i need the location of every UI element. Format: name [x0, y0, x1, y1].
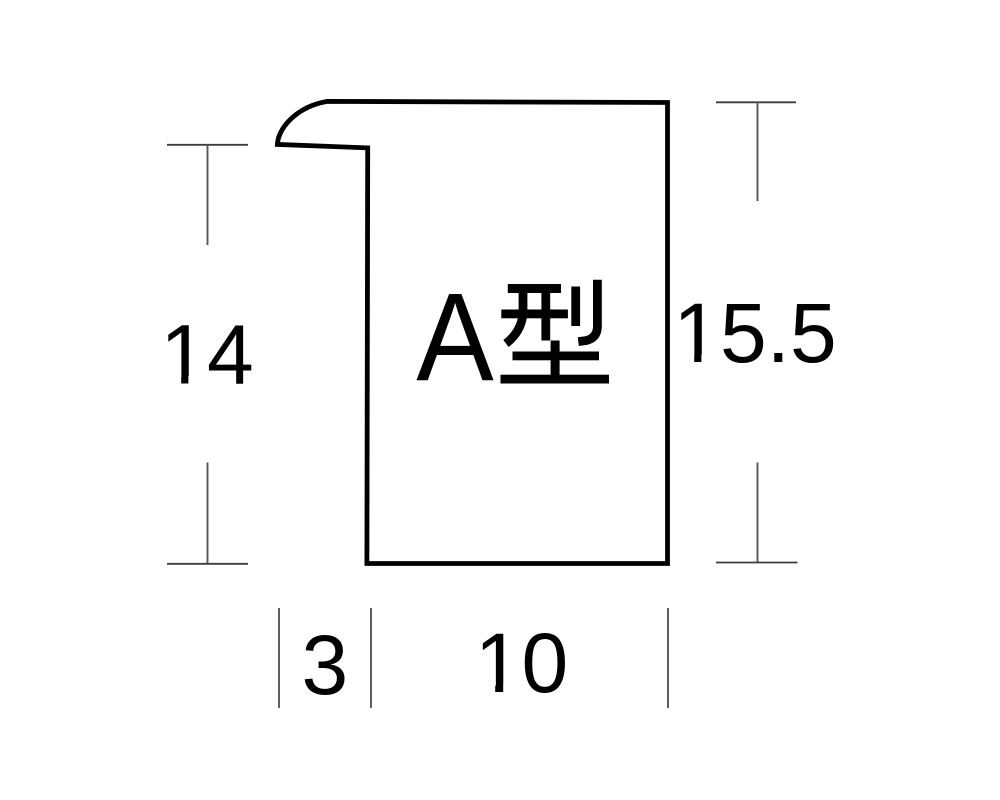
svg-text:A: A	[416, 267, 494, 407]
svg-text:3: 3	[301, 618, 348, 712]
svg-text:15.5: 15.5	[673, 286, 837, 380]
